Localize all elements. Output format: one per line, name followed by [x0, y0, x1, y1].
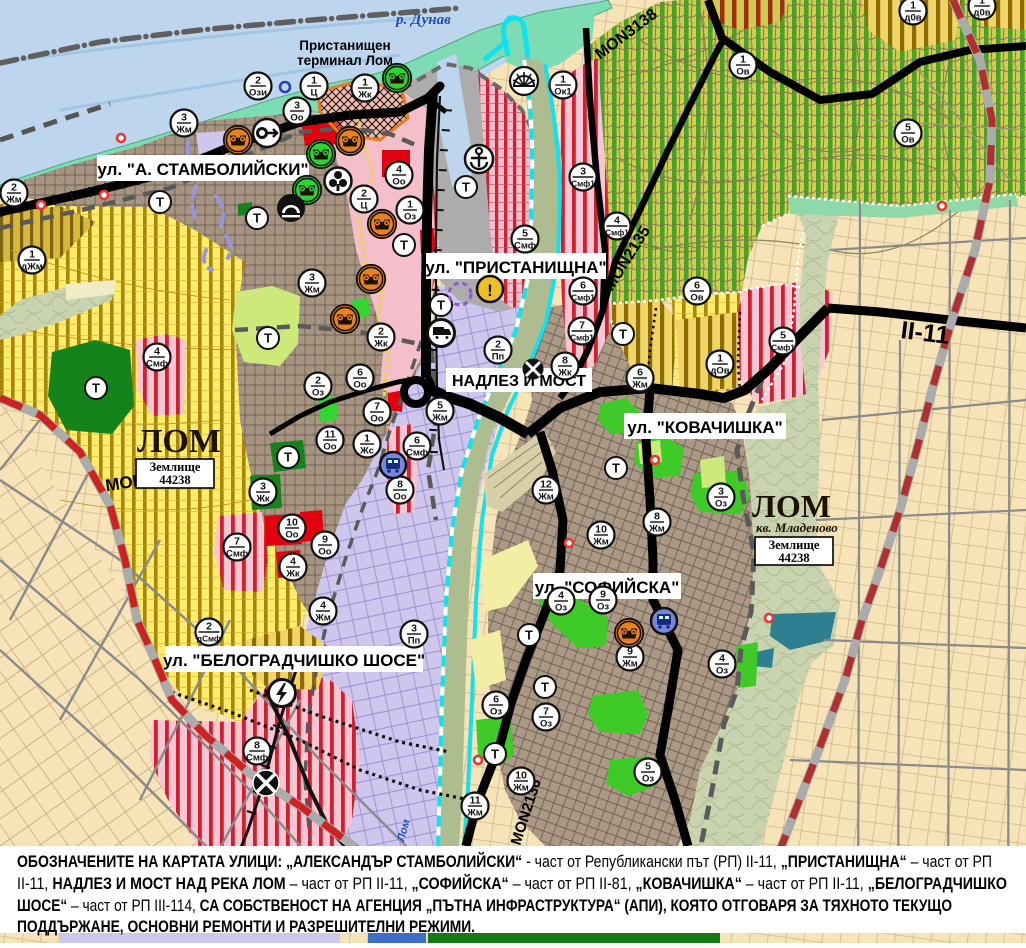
svg-text:T: T [264, 331, 272, 346]
svg-text:Пристанищен: Пристанищен [299, 38, 390, 53]
svg-text:8: 8 [654, 511, 660, 523]
svg-text:Жм: Жм [303, 285, 320, 296]
svg-text:Смф: Смф [246, 753, 268, 764]
svg-text:1: 1 [29, 249, 35, 261]
svg-text:Землище: Землище [150, 460, 201, 474]
svg-text:6: 6 [493, 694, 499, 706]
svg-text:T: T [284, 450, 292, 465]
svg-text:Ок1: Ок1 [554, 87, 572, 98]
svg-text:ул. "ПРИСТАНИЩНА": ул. "ПРИСТАНИЩНА" [425, 258, 606, 277]
svg-text:7: 7 [543, 706, 549, 718]
svg-text:1: 1 [407, 199, 413, 211]
svg-text:5: 5 [780, 330, 786, 342]
svg-text:дСмф: дСмф [197, 635, 221, 644]
svg-text:2: 2 [206, 621, 212, 633]
svg-text:Жк: Жк [255, 494, 270, 505]
svg-text:11: 11 [469, 795, 480, 807]
svg-text:Жс: Жс [359, 446, 374, 457]
svg-text:8: 8 [397, 479, 403, 491]
svg-text:д0в: д0в [973, 8, 990, 19]
svg-text:8: 8 [254, 740, 260, 752]
svg-text:Жк: Жк [373, 339, 388, 350]
svg-text:Ози: Ози [249, 88, 267, 99]
svg-text:Оз: Оз [642, 774, 654, 785]
svg-text:Жм: Жм [631, 380, 648, 391]
svg-text:Смф1: Смф1 [605, 229, 629, 238]
svg-text:3: 3 [260, 481, 266, 493]
svg-text:T: T [437, 298, 445, 313]
svg-text:Оо: Оо [392, 177, 405, 188]
svg-text:II-11: II-11 [899, 316, 951, 350]
svg-text:ул. "БЕЛОГРАДЧИШКО ШОСЕ": ул. "БЕЛОГРАДЧИШКО ШОСЕ" [163, 651, 425, 670]
svg-text:Смф: Смф [146, 359, 168, 370]
svg-text:3: 3 [718, 486, 724, 498]
svg-text:9: 9 [600, 589, 606, 601]
svg-text:Смф1: Смф1 [771, 344, 795, 353]
svg-text:6: 6 [414, 435, 420, 447]
svg-text:1: 1 [717, 353, 723, 365]
svg-text:Жм: Жм [621, 659, 638, 670]
svg-text:3: 3 [181, 112, 187, 124]
svg-text:1: 1 [740, 54, 746, 66]
svg-text:ПОДДЪРЖАНЕ, ОСНОВНИ РЕМОНТИ И: ПОДДЪРЖАНЕ, ОСНОВНИ РЕМОНТИ И РАЗРЕШИТЕЛ… [17, 918, 475, 936]
svg-text:3: 3 [309, 272, 315, 284]
svg-text:Оз: Оз [715, 499, 727, 510]
svg-text:Жм: Жм [592, 537, 609, 548]
svg-text:Оз: Оз [312, 388, 324, 399]
svg-text:6: 6 [637, 367, 643, 379]
svg-text:Пп: Пп [408, 636, 421, 647]
svg-text:3: 3 [411, 623, 417, 635]
svg-text:2: 2 [361, 188, 367, 200]
svg-text:II-11, НАДЛЕЗ И МОСТ НАД РЕКА: II-11, НАДЛЕЗ И МОСТ НАД РЕКА ЛОМ – част… [17, 874, 1007, 893]
svg-text:д0в: д0в [904, 13, 921, 24]
svg-text:Смф1: Смф1 [571, 294, 595, 303]
svg-text:Жм: Жм [648, 524, 665, 535]
svg-text:ул. "КОВАЧИШКА": ул. "КОВАЧИШКА" [627, 418, 783, 437]
svg-text:T: T [619, 327, 627, 342]
svg-text:дОв: дОв [710, 366, 729, 377]
svg-text:4: 4 [719, 653, 725, 665]
svg-text:6: 6 [580, 280, 586, 292]
svg-text:T: T [462, 180, 470, 195]
svg-text:Оо: Оо [290, 113, 303, 124]
svg-text:5: 5 [645, 761, 651, 773]
svg-text:7: 7 [234, 536, 240, 548]
svg-text:4: 4 [614, 215, 620, 227]
svg-text:T: T [400, 238, 408, 253]
svg-text:7: 7 [374, 401, 380, 413]
svg-text:Оз: Оз [555, 603, 567, 614]
svg-text:T: T [92, 381, 100, 396]
svg-text:4: 4 [320, 600, 326, 612]
svg-text:5: 5 [437, 400, 443, 412]
svg-text:6: 6 [357, 367, 363, 379]
svg-text:Ов: Ов [736, 67, 749, 78]
svg-text:7: 7 [579, 320, 585, 332]
svg-text:Жм: Жм [466, 808, 483, 819]
svg-text:T: T [156, 195, 164, 210]
svg-text:Ц: Ц [311, 88, 318, 99]
svg-text:4: 4 [558, 590, 564, 602]
svg-text:2: 2 [255, 75, 261, 87]
svg-text:1: 1 [910, 0, 916, 12]
svg-text:Жм: Жм [512, 783, 529, 794]
svg-text:ОБОЗНАЧЕНИТЕ НА КАРТАТА УЛИЦИ:: ОБОЗНАЧЕНИТЕ НА КАРТАТА УЛИЦИ: „АЛЕКСАНД… [17, 852, 992, 871]
svg-text:Смф: Смф [406, 448, 428, 459]
svg-text:Оз: Оз [490, 707, 502, 718]
svg-text:2: 2 [495, 339, 501, 351]
svg-text:8: 8 [562, 355, 568, 367]
svg-text:Оо: Оо [393, 492, 406, 503]
svg-text:Оо: Оо [285, 530, 298, 541]
svg-text:Оз: Оз [540, 719, 552, 730]
svg-text:ЛОМ: ЛОМ [752, 488, 831, 524]
svg-text:Ов: Ов [690, 293, 703, 304]
svg-text:4: 4 [396, 164, 402, 176]
svg-text:Ов: Ов [901, 135, 914, 146]
svg-text:дЖм: дЖм [21, 262, 43, 273]
svg-text:Оо: Оо [370, 414, 383, 425]
svg-text:Жк: Жк [557, 368, 572, 379]
svg-text:T: T [525, 628, 533, 643]
svg-text:Жк: Жк [357, 90, 372, 101]
svg-text:3: 3 [580, 166, 586, 178]
svg-text:44238: 44238 [159, 473, 190, 487]
svg-text:Оо: Оо [353, 380, 366, 391]
svg-text:1: 1 [362, 77, 368, 89]
svg-text:2: 2 [315, 375, 321, 387]
svg-text:10: 10 [286, 517, 298, 529]
svg-text:1: 1 [311, 75, 317, 87]
svg-text:T: T [253, 211, 261, 226]
svg-text:Землище: Землище [769, 538, 820, 552]
svg-text:6: 6 [694, 280, 700, 292]
svg-text:Оо: Оо [323, 442, 336, 453]
svg-text:10: 10 [515, 770, 527, 782]
svg-text:5: 5 [905, 122, 911, 134]
svg-text:44238: 44238 [778, 551, 809, 565]
svg-text:T: T [491, 747, 499, 762]
svg-text:Оз: Оз [716, 666, 728, 677]
svg-text:11: 11 [324, 429, 335, 441]
svg-text:T: T [612, 461, 620, 476]
svg-text:2: 2 [11, 182, 17, 194]
svg-text:Жм: Жм [175, 125, 192, 136]
svg-text:ЛОМ: ЛОМ [137, 423, 221, 460]
svg-text:Смф1: Смф1 [571, 180, 595, 189]
svg-text:5: 5 [522, 228, 528, 240]
svg-text:Жк: Жк [285, 569, 300, 580]
svg-text:1: 1 [560, 74, 566, 86]
svg-text:12: 12 [540, 479, 552, 491]
svg-text:2: 2 [378, 326, 384, 338]
svg-text:Смф: Смф [226, 549, 248, 560]
svg-text:ул. "А. СТАМБОЛИЙСКИ": ул. "А. СТАМБОЛИЙСКИ" [97, 160, 308, 179]
svg-text:Оз: Оз [597, 602, 609, 613]
svg-text:10: 10 [595, 524, 607, 536]
svg-text:T: T [541, 680, 549, 695]
svg-text:3: 3 [294, 100, 300, 112]
svg-text:9: 9 [322, 534, 328, 546]
svg-text:Жм: Жм [537, 492, 554, 503]
svg-text:Жм: Жм [431, 413, 448, 424]
svg-text:кв. Младеново: кв. Младеново [756, 520, 838, 535]
svg-text:Ц: Ц [361, 201, 368, 212]
svg-text:4: 4 [290, 556, 296, 568]
svg-text:ШОСЕ“ – част от РП III-114, СА: ШОСЕ“ – част от РП III-114, СА СОБСТВЕНО… [17, 897, 952, 915]
svg-text:!: ! [487, 281, 493, 300]
svg-text:Жм: Жм [5, 195, 22, 206]
svg-text:Смф1: Смф1 [570, 334, 594, 343]
svg-text:1: 1 [979, 0, 985, 7]
svg-text:Жм: Жм [314, 613, 331, 624]
svg-text:Смф: Смф [514, 241, 536, 252]
svg-text:терминал Лом: терминал Лом [297, 53, 393, 68]
svg-text:р. Дунав: р. Дунав [394, 12, 451, 28]
svg-text:Оо: Оо [318, 547, 331, 558]
svg-text:Пп: Пп [492, 352, 505, 363]
svg-text:Оз: Оз [404, 212, 416, 223]
svg-text:4: 4 [154, 346, 160, 358]
svg-text:1: 1 [364, 433, 370, 445]
